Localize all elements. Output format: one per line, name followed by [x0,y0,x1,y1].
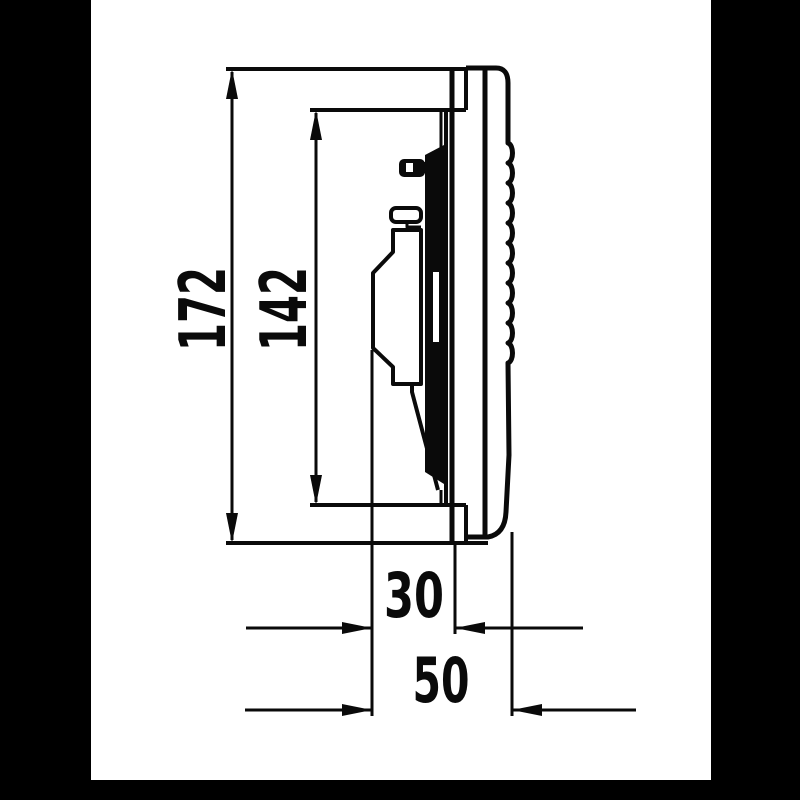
letterbox-bottom [0,780,800,800]
driver-flange-highlight [433,272,439,342]
screenshot-canvas: 172 142 30 50 [0,0,800,800]
technical-drawing: 172 142 30 50 [0,0,800,800]
paper-area [91,0,711,780]
dimension-label-overall-height: 172 [167,267,241,351]
letterbox-left [0,0,91,800]
dimension-label-recess-depth: 30 [384,559,444,632]
mounting-lug [391,208,421,222]
letterbox-right [711,0,800,800]
terminal-slot [406,163,413,172]
dimension-label-inner-height: 142 [248,267,322,351]
dimension-label-overall-depth: 50 [413,644,470,717]
terminal-stem [420,162,434,173]
